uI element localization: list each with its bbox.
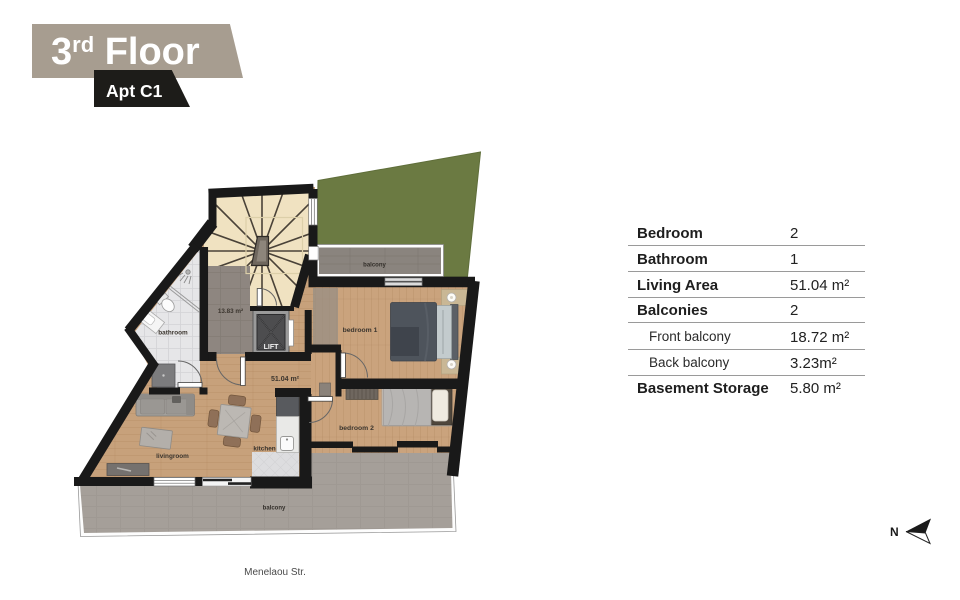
svg-text:N: N xyxy=(890,525,899,539)
svg-text:bedroom 1: bedroom 1 xyxy=(343,327,378,334)
svg-text:bedroom 2: bedroom 2 xyxy=(339,425,374,432)
svg-text:LIFT: LIFT xyxy=(264,344,279,351)
svg-text:balcony: balcony xyxy=(263,506,286,512)
svg-text:bathroom: bathroom xyxy=(158,330,188,337)
svg-text:51.04 m²: 51.04 m² xyxy=(271,376,300,383)
svg-text:kitchen: kitchen xyxy=(253,446,275,453)
svg-text:13.83 m²: 13.83 m² xyxy=(218,308,243,315)
svg-text:livingroom: livingroom xyxy=(156,453,189,460)
svg-text:balcony: balcony xyxy=(363,263,386,269)
